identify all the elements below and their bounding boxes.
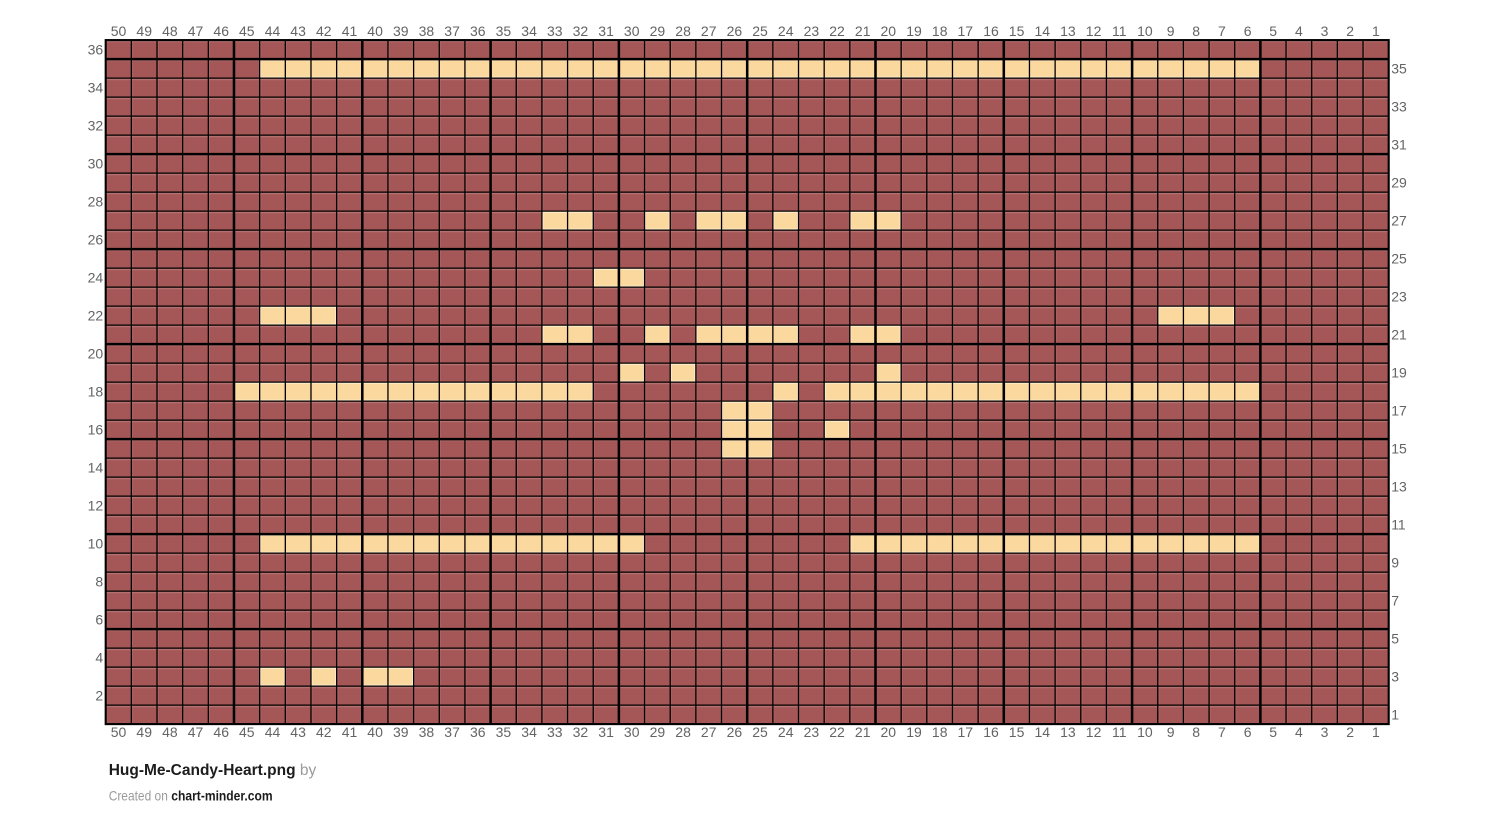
svg-text:16: 16 (983, 23, 999, 39)
svg-text:13: 13 (1060, 23, 1076, 39)
svg-text:15: 15 (1009, 724, 1025, 740)
svg-text:36: 36 (470, 724, 486, 740)
svg-text:50: 50 (111, 23, 127, 39)
svg-text:43: 43 (290, 23, 306, 39)
svg-text:27: 27 (701, 23, 717, 39)
svg-text:49: 49 (136, 23, 152, 39)
svg-text:34: 34 (521, 23, 537, 39)
svg-text:42: 42 (316, 23, 332, 39)
svg-text:27: 27 (701, 724, 717, 740)
svg-text:23: 23 (804, 724, 820, 740)
svg-text:4: 4 (95, 650, 103, 666)
svg-text:48: 48 (162, 724, 178, 740)
svg-text:16: 16 (983, 724, 999, 740)
svg-text:9: 9 (1167, 724, 1175, 740)
svg-text:26: 26 (88, 232, 104, 248)
svg-text:38: 38 (419, 724, 435, 740)
svg-text:4: 4 (1295, 23, 1303, 39)
svg-text:36: 36 (88, 42, 104, 58)
svg-text:5: 5 (1391, 631, 1399, 647)
svg-text:50: 50 (111, 724, 127, 740)
svg-text:2: 2 (1346, 724, 1354, 740)
svg-text:9: 9 (1391, 555, 1399, 571)
svg-text:3: 3 (1391, 669, 1399, 685)
svg-text:33: 33 (1391, 99, 1407, 115)
svg-text:35: 35 (1391, 61, 1407, 77)
svg-text:34: 34 (88, 80, 104, 96)
svg-text:10: 10 (1137, 23, 1153, 39)
svg-text:10: 10 (88, 536, 104, 552)
svg-text:22: 22 (829, 724, 845, 740)
svg-text:37: 37 (444, 724, 460, 740)
svg-text:Hug-Me-Candy-Heart.png by: Hug-Me-Candy-Heart.png by (109, 762, 317, 779)
svg-text:30: 30 (624, 724, 640, 740)
svg-text:17: 17 (1391, 403, 1407, 419)
svg-text:48: 48 (162, 23, 178, 39)
svg-text:7: 7 (1218, 23, 1226, 39)
svg-text:11: 11 (1391, 517, 1406, 533)
svg-text:44: 44 (265, 23, 281, 39)
svg-text:7: 7 (1391, 593, 1399, 609)
svg-text:3: 3 (1321, 724, 1329, 740)
svg-text:15: 15 (1009, 23, 1025, 39)
svg-text:41: 41 (342, 23, 358, 39)
svg-text:8: 8 (1192, 23, 1200, 39)
svg-text:46: 46 (213, 724, 229, 740)
svg-text:47: 47 (188, 23, 204, 39)
svg-text:8: 8 (95, 574, 103, 590)
svg-text:31: 31 (598, 23, 614, 39)
svg-text:1: 1 (1391, 707, 1399, 723)
svg-text:19: 19 (906, 23, 922, 39)
svg-text:45: 45 (239, 23, 255, 39)
svg-text:1: 1 (1372, 23, 1380, 39)
svg-text:21: 21 (855, 23, 871, 39)
svg-text:36: 36 (470, 23, 486, 39)
svg-text:28: 28 (675, 23, 691, 39)
svg-text:17: 17 (958, 23, 974, 39)
svg-text:13: 13 (1391, 479, 1407, 495)
svg-text:29: 29 (650, 724, 666, 740)
svg-text:40: 40 (367, 23, 383, 39)
svg-text:30: 30 (624, 23, 640, 39)
svg-text:2: 2 (95, 688, 103, 704)
svg-text:22: 22 (88, 308, 104, 324)
svg-text:19: 19 (906, 724, 922, 740)
svg-text:25: 25 (752, 724, 768, 740)
svg-text:18: 18 (932, 724, 948, 740)
svg-text:39: 39 (393, 23, 409, 39)
svg-text:17: 17 (958, 724, 974, 740)
svg-text:33: 33 (547, 23, 563, 39)
svg-text:16: 16 (88, 422, 104, 438)
svg-text:30: 30 (88, 156, 104, 172)
svg-text:7: 7 (1218, 724, 1226, 740)
svg-text:19: 19 (1391, 365, 1407, 381)
svg-text:41: 41 (342, 724, 358, 740)
svg-text:20: 20 (881, 23, 897, 39)
svg-text:5: 5 (1269, 23, 1277, 39)
svg-text:27: 27 (1391, 213, 1407, 229)
svg-text:5: 5 (1269, 724, 1277, 740)
svg-text:37: 37 (444, 23, 460, 39)
svg-text:14: 14 (88, 460, 104, 476)
svg-text:24: 24 (778, 724, 794, 740)
svg-text:26: 26 (727, 724, 743, 740)
svg-text:46: 46 (213, 23, 229, 39)
svg-text:4: 4 (1295, 724, 1303, 740)
svg-text:2: 2 (1346, 23, 1354, 39)
svg-text:35: 35 (496, 724, 512, 740)
svg-text:18: 18 (88, 384, 104, 400)
svg-text:3: 3 (1321, 23, 1329, 39)
svg-text:43: 43 (290, 724, 306, 740)
svg-text:29: 29 (650, 23, 666, 39)
svg-text:10: 10 (1137, 724, 1153, 740)
svg-text:24: 24 (88, 270, 104, 286)
svg-text:8: 8 (1192, 724, 1200, 740)
svg-text:33: 33 (547, 724, 563, 740)
svg-text:20: 20 (88, 346, 104, 362)
svg-text:12: 12 (88, 498, 104, 514)
svg-text:25: 25 (752, 23, 768, 39)
svg-text:39: 39 (393, 724, 409, 740)
svg-text:31: 31 (598, 724, 614, 740)
svg-text:21: 21 (855, 724, 871, 740)
svg-text:45: 45 (239, 724, 255, 740)
svg-text:44: 44 (265, 724, 281, 740)
svg-text:20: 20 (881, 724, 897, 740)
svg-text:21: 21 (1391, 327, 1407, 343)
svg-text:34: 34 (521, 724, 537, 740)
svg-text:23: 23 (804, 23, 820, 39)
svg-text:47: 47 (188, 724, 204, 740)
svg-text:11: 11 (1112, 724, 1127, 740)
svg-text:11: 11 (1112, 23, 1127, 39)
svg-text:29: 29 (1391, 175, 1407, 191)
svg-text:13: 13 (1060, 724, 1076, 740)
svg-text:31: 31 (1391, 137, 1407, 153)
svg-text:14: 14 (1035, 23, 1051, 39)
svg-text:23: 23 (1391, 289, 1407, 305)
svg-text:42: 42 (316, 724, 332, 740)
svg-text:38: 38 (419, 23, 435, 39)
svg-text:22: 22 (829, 23, 845, 39)
svg-text:28: 28 (88, 194, 104, 210)
svg-text:26: 26 (727, 23, 743, 39)
svg-text:12: 12 (1086, 23, 1102, 39)
svg-text:9: 9 (1167, 23, 1175, 39)
svg-text:14: 14 (1035, 724, 1051, 740)
svg-text:12: 12 (1086, 724, 1102, 740)
svg-text:1: 1 (1372, 724, 1380, 740)
svg-text:40: 40 (367, 724, 383, 740)
svg-text:6: 6 (95, 612, 103, 628)
svg-text:32: 32 (573, 724, 589, 740)
svg-text:15: 15 (1391, 441, 1407, 457)
svg-text:49: 49 (136, 724, 152, 740)
svg-text:28: 28 (675, 724, 691, 740)
svg-text:6: 6 (1244, 23, 1252, 39)
svg-text:35: 35 (496, 23, 512, 39)
svg-text:Created on chart-minder.com: Created on chart-minder.com (109, 787, 273, 803)
svg-text:18: 18 (932, 23, 948, 39)
svg-text:32: 32 (88, 118, 104, 134)
svg-text:24: 24 (778, 23, 794, 39)
svg-text:25: 25 (1391, 251, 1407, 267)
svg-text:32: 32 (573, 23, 589, 39)
svg-text:6: 6 (1244, 724, 1252, 740)
